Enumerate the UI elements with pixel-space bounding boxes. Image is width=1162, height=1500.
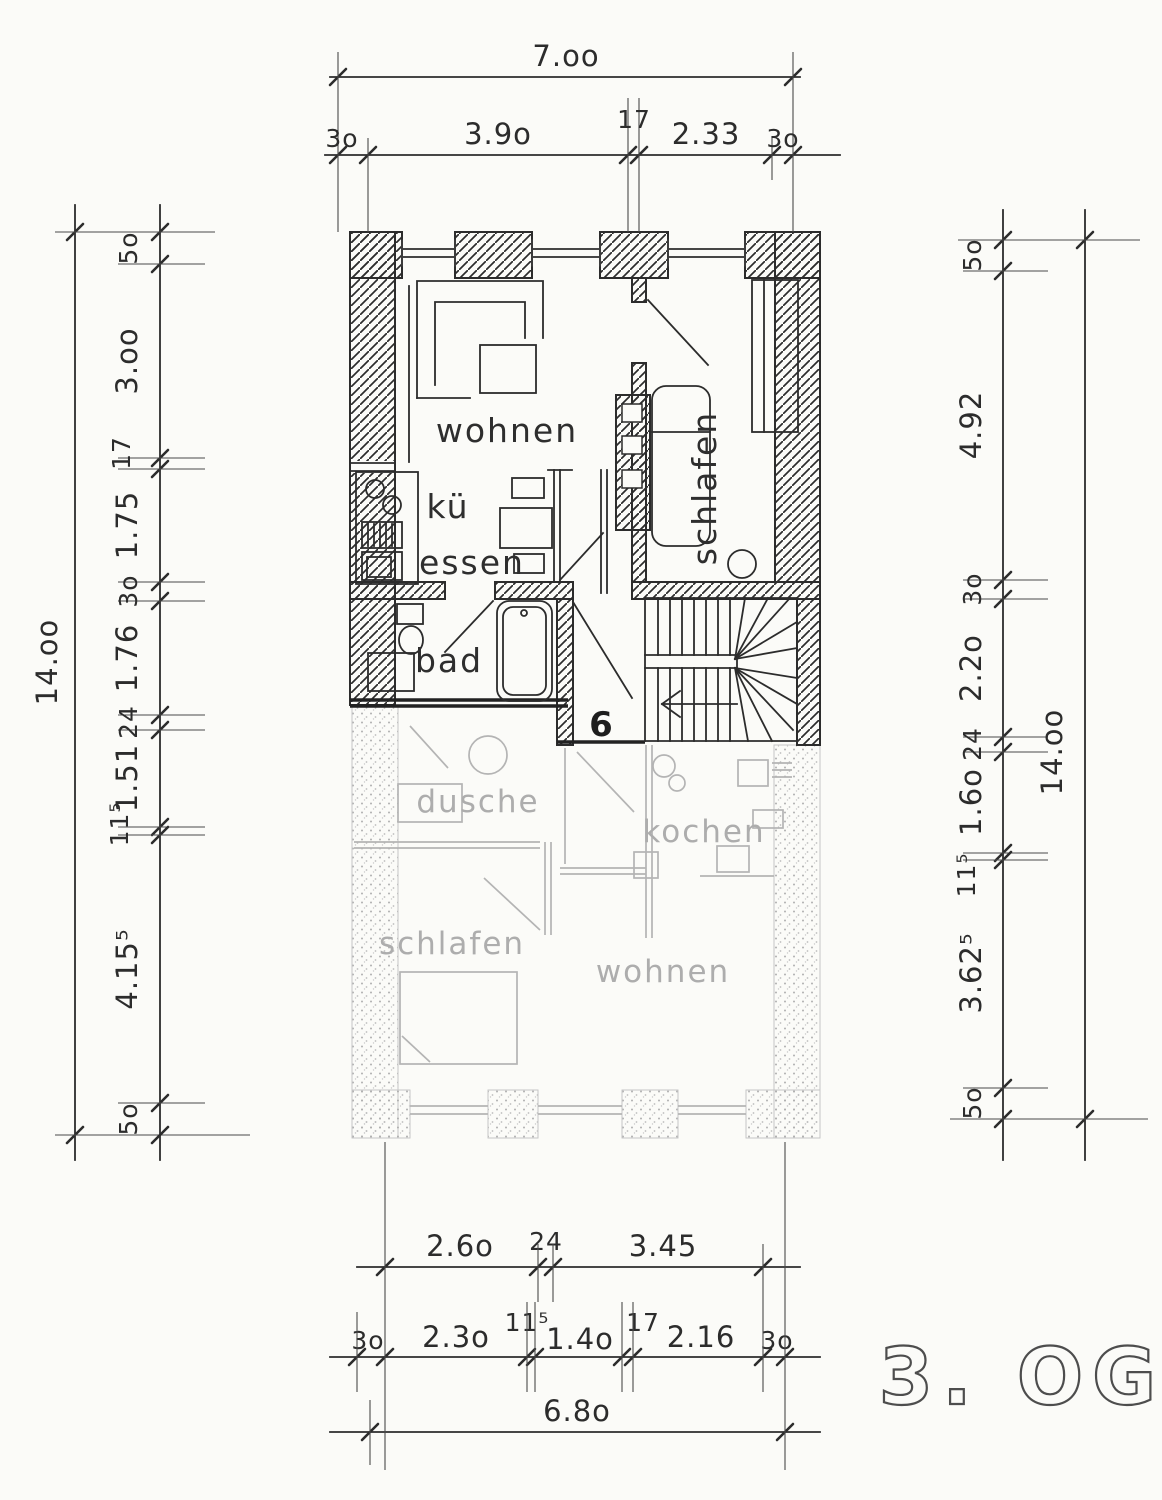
lower-bottom-pier [352, 1090, 410, 1138]
dim-top-seg: 3o [325, 124, 358, 153]
dim-right-total: 14.oo [1035, 709, 1069, 796]
lower-room-label-kochen: kochen [642, 814, 765, 850]
dim-left-seg: 3o [114, 574, 143, 607]
dim-left-seg: 5o [114, 231, 143, 264]
dim-top-seg: 3.9o [464, 117, 532, 151]
dim-bottom-row2: 2.3o [422, 1320, 490, 1354]
staircase [645, 598, 797, 741]
room-label-schlafen: schlafen [685, 411, 724, 565]
lower-windows [410, 1106, 746, 1114]
dim-left-seg: 17 [107, 436, 136, 470]
floor-label: 3. OG [879, 1333, 1162, 1423]
lower-bottom-pier [746, 1090, 820, 1138]
top-wall-windows [402, 240, 745, 266]
dim-bottom-row1: 2.6o [426, 1229, 494, 1263]
door-swings-upper [445, 300, 708, 698]
lower-bottom-pier [622, 1090, 678, 1138]
dim-left-seg: 1.75 [110, 491, 144, 560]
dim-right-seg: 1.6o [954, 768, 988, 836]
dim-left-seg: 11⁵ [105, 802, 134, 847]
room-label-wohnen: wohnen [436, 411, 578, 450]
dim-bottom-row2: 1.4o [546, 1322, 614, 1356]
dim-bottom-row2: 3o [351, 1326, 384, 1355]
dimension-chain-left: 14.oo 5o 3.oo 17 1.75 3o 1.76 24 1.51 11… [30, 205, 250, 1160]
lower-room-label-schlafen: schlafen [379, 926, 525, 962]
dim-bottom-row1: 3.45 [629, 1229, 698, 1263]
dim-right-seg: 11⁵ [952, 853, 981, 898]
room-label-kueche: kü [426, 487, 469, 526]
lower-apartment-faded-plan: dusche kochen schlafen wohnen [352, 706, 820, 1138]
floor-plan-drawing: dusche kochen schlafen wohnen [0, 0, 1162, 1500]
floor-plan-sheet: dusche kochen schlafen wohnen [0, 0, 1162, 1500]
dim-bottom-row1: 24 [529, 1227, 563, 1256]
unit-number: 6 [589, 705, 613, 745]
dim-left-seg: 3.oo [110, 327, 144, 394]
lower-bedroom-bed [400, 972, 517, 1064]
room-label-essen: essen [419, 543, 525, 582]
dim-right-seg: 3.62⁵ [954, 932, 988, 1013]
dimension-chain-top: 7.oo 3o 3.9o 17 2.33 3o [325, 39, 840, 232]
dim-top-total: 7.oo [532, 39, 599, 73]
dim-top-seg: 3o [766, 124, 799, 153]
dimension-chain-right: 14.oo 5o 4.92 3o 2.2o 24 1.6o 11⁵ 3.62⁵ … [950, 210, 1148, 1160]
lower-room-label-dusche: dusche [416, 784, 539, 820]
dim-left-seg: 4.15⁵ [110, 928, 144, 1009]
hall-partitions [548, 470, 607, 593]
room-label-bad: bad [415, 641, 483, 680]
lower-right-wall [774, 745, 820, 1138]
dim-right-seg: 3o [958, 572, 987, 605]
lower-left-wall [352, 706, 398, 1138]
dim-left-seg: 1.76 [110, 624, 144, 693]
dimension-chain-bottom: 2.6o 24 3.45 3o 2.3o 11⁵ 1.4o 17 2.16 3o… [330, 1142, 820, 1470]
dim-top-seg: 17 [617, 105, 651, 134]
living-furniture [417, 281, 543, 398]
dim-right-seg: 5o [958, 1086, 987, 1119]
dim-right-seg: 24 [958, 727, 987, 761]
dim-top-seg: 2.33 [672, 117, 741, 151]
lower-door-swings [410, 726, 634, 930]
dim-right-seg: 5o [958, 238, 987, 271]
lower-room-label-wohnen: wohnen [596, 954, 730, 990]
dim-bottom-row2: 3o [760, 1326, 793, 1355]
lower-bottom-pier [488, 1090, 538, 1138]
dim-left-seg: 24 [114, 705, 143, 739]
dim-right-seg: 4.92 [954, 391, 988, 460]
dim-right-seg: 2.2o [954, 634, 988, 702]
dim-left-seg: 5o [114, 1102, 143, 1135]
dim-bottom-row2: 17 [626, 1308, 660, 1337]
dim-left-total: 14.oo [30, 619, 64, 706]
dim-bottom-total: 6.8o [543, 1394, 611, 1428]
dim-bottom-row2: 2.16 [667, 1320, 736, 1354]
